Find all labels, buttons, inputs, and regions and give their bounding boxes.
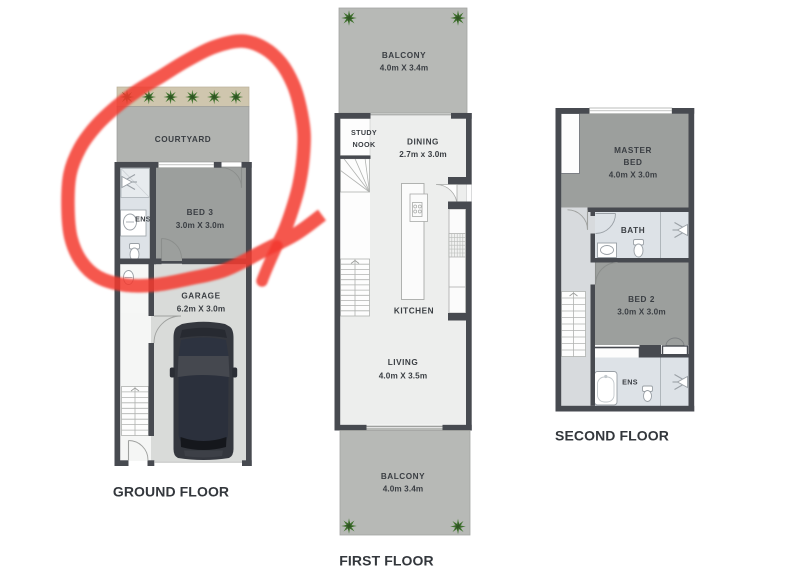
svg-text:4.0m 3.4m: 4.0m 3.4m <box>383 485 424 494</box>
svg-text:NOOK: NOOK <box>353 140 376 149</box>
svg-text:GROUND FLOOR: GROUND FLOOR <box>113 484 229 500</box>
svg-text:4.0m X 3.4m: 4.0m X 3.4m <box>380 64 428 73</box>
svg-text:BED: BED <box>624 158 643 167</box>
svg-text:4.0m X 3.5m: 4.0m X 3.5m <box>379 372 427 381</box>
svg-text:KITCHEN: KITCHEN <box>394 307 434 316</box>
svg-text:DINING: DINING <box>407 138 439 147</box>
svg-text:BALCONY: BALCONY <box>382 51 426 60</box>
svg-text:GARAGE: GARAGE <box>181 292 220 301</box>
svg-text:3.0m X 3.0m: 3.0m X 3.0m <box>617 308 665 317</box>
svg-text:LIVING: LIVING <box>388 358 419 367</box>
svg-text:STUDY: STUDY <box>351 128 377 137</box>
svg-text:MASTER: MASTER <box>614 146 652 155</box>
svg-text:SECOND FLOOR: SECOND FLOOR <box>555 428 669 444</box>
svg-text:BALCONY: BALCONY <box>381 472 425 481</box>
svg-text:BED 3: BED 3 <box>187 208 214 217</box>
svg-text:2.7m x 3.0m: 2.7m x 3.0m <box>399 150 447 159</box>
svg-text:6.2m X 3.0m: 6.2m X 3.0m <box>177 305 225 314</box>
svg-text:BATH: BATH <box>621 226 645 235</box>
svg-text:BED 2: BED 2 <box>628 295 655 304</box>
svg-text:4.0m X 3.0m: 4.0m X 3.0m <box>609 171 657 180</box>
svg-text:ENS: ENS <box>135 215 151 224</box>
svg-text:ENS: ENS <box>622 378 638 387</box>
svg-text:COURTYARD: COURTYARD <box>155 135 212 144</box>
svg-text:FIRST FLOOR: FIRST FLOOR <box>339 553 433 569</box>
svg-text:3.0m X 3.0m: 3.0m X 3.0m <box>176 221 224 230</box>
